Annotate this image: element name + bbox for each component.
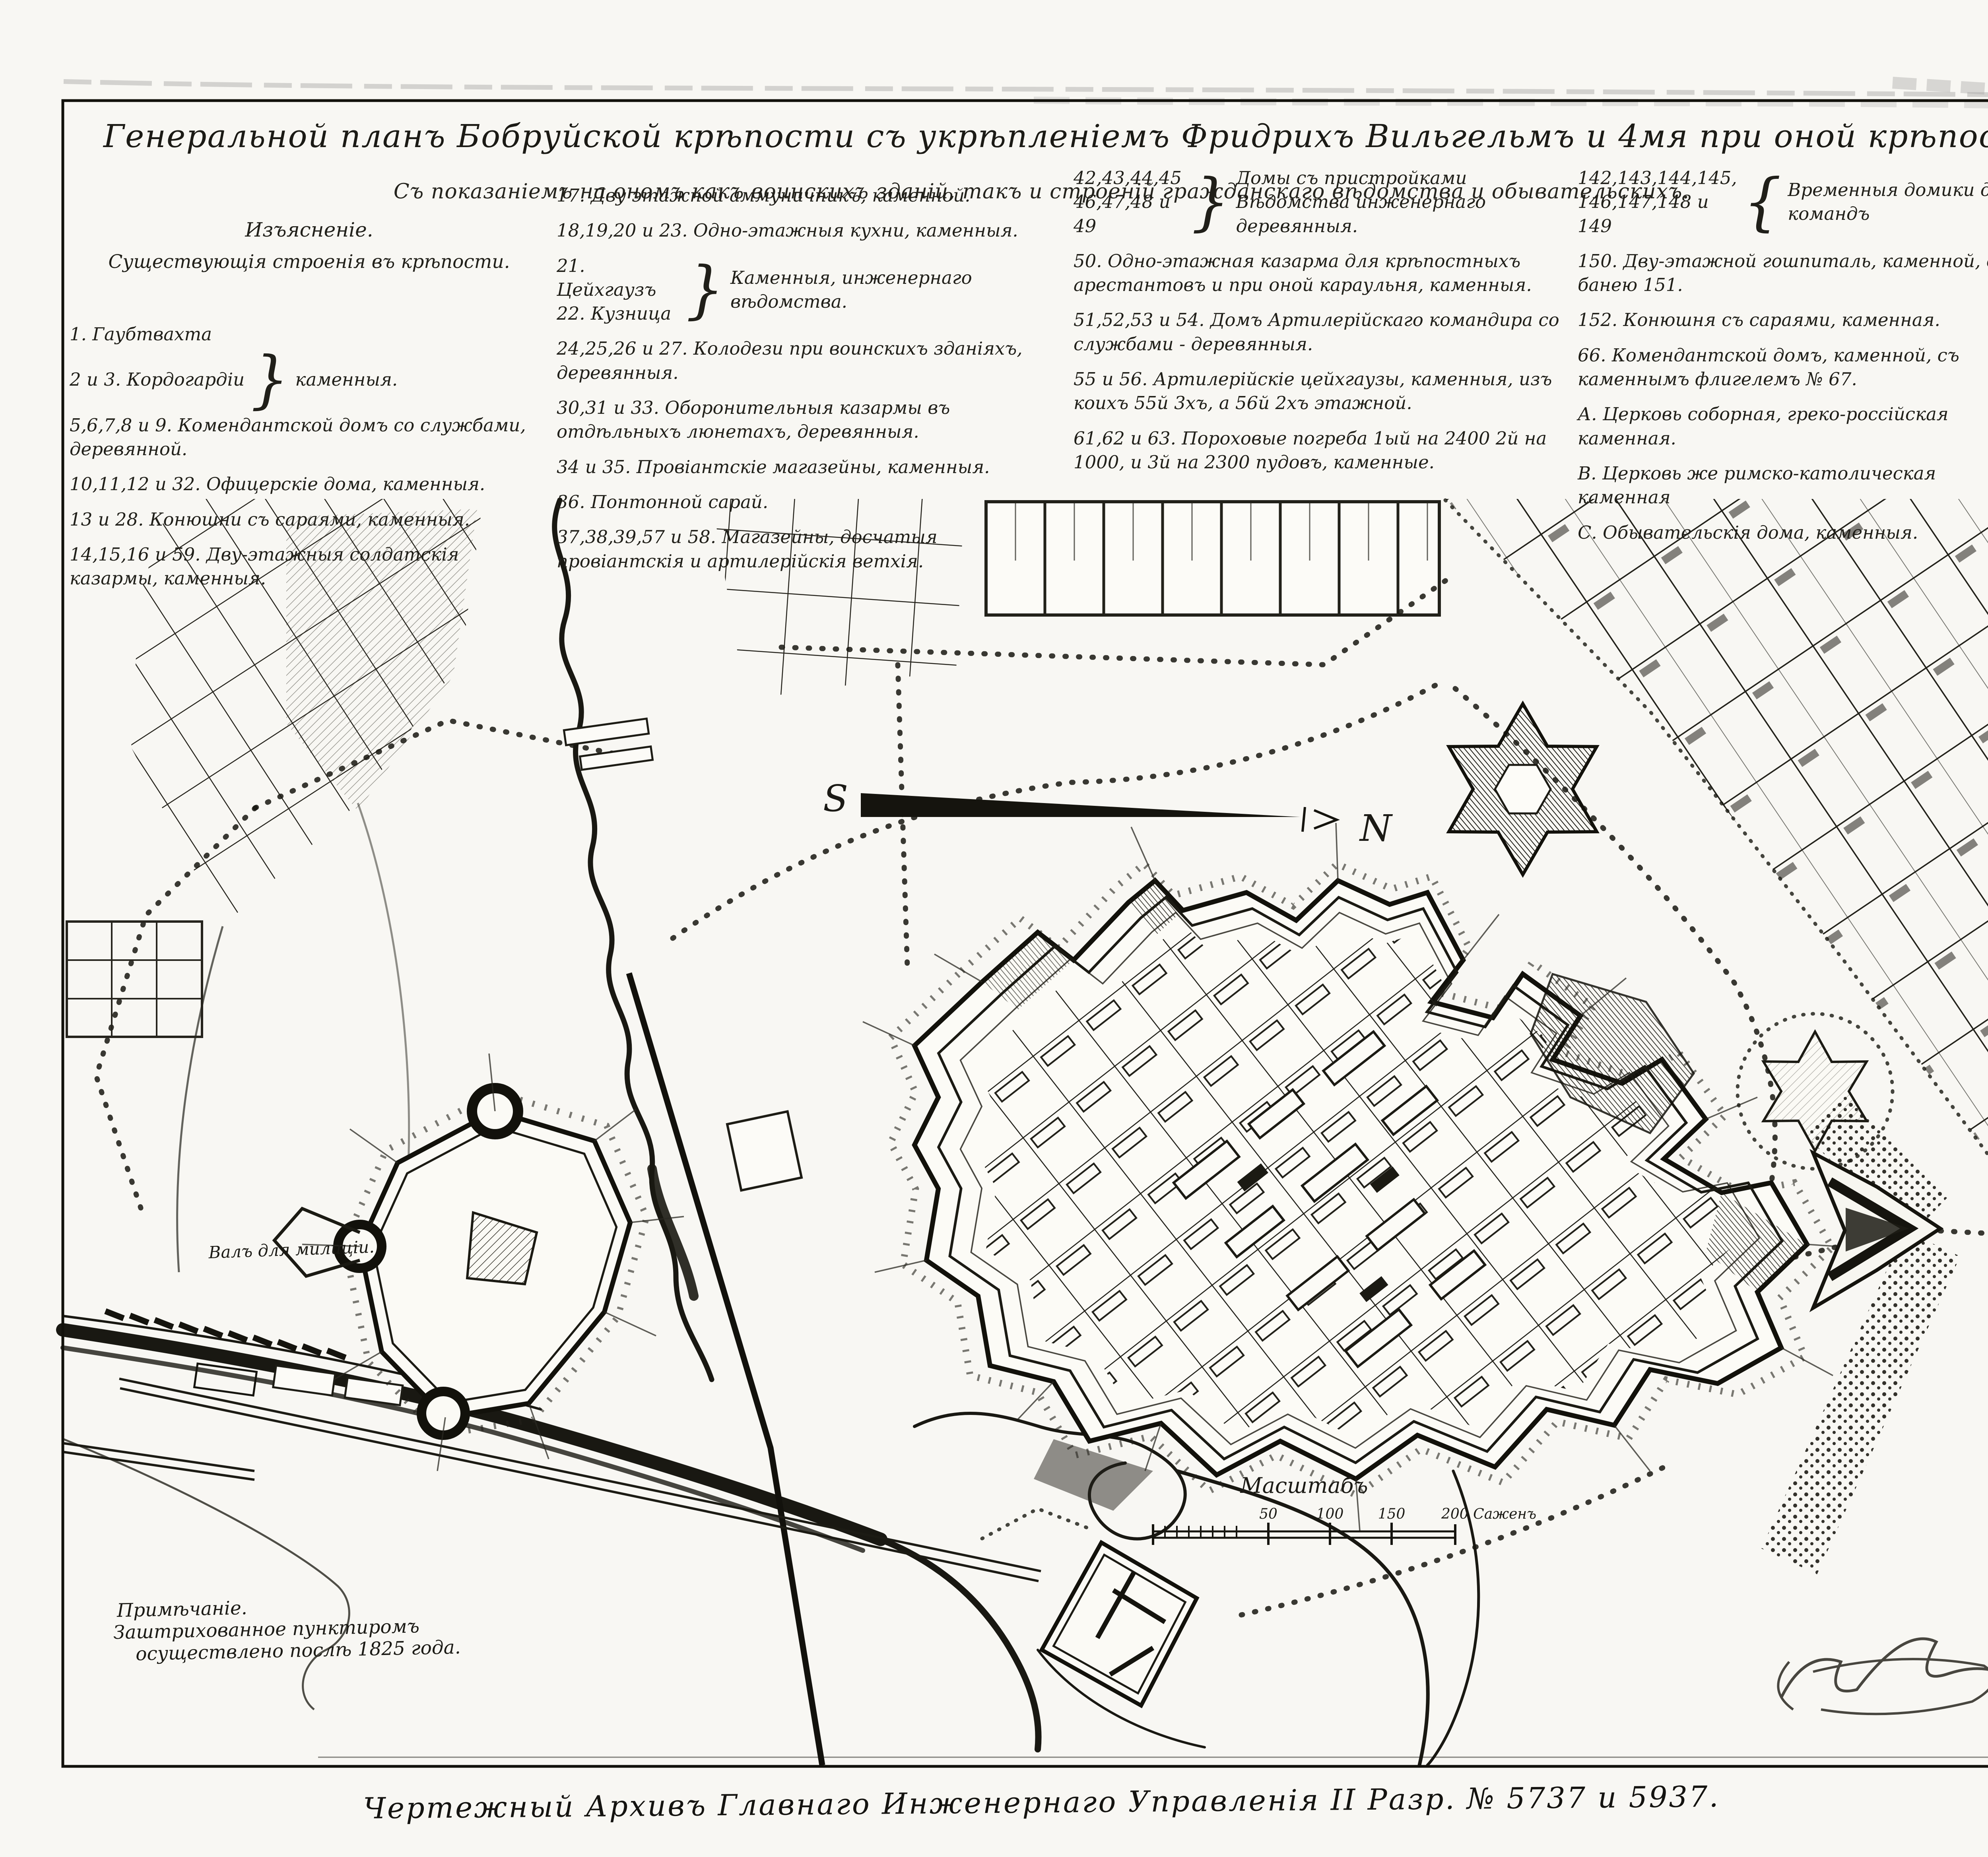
legend-column-4: 142,143,144,145, 146,147,148 и 149 { Вре… [1578,166,1988,556]
legend-item-numbers: 42,43,44,45 [1074,166,1185,190]
signature [1778,1639,1988,1714]
map-sheet: { "title": { "line1": "Генеральной планъ… [0,0,1988,1857]
legend-item: 5,6,7,8 и 9. Комендантской домъ со служб… [70,413,549,462]
legend-item: 13 и 28. Конюшни съ сараями, каменныя. [70,508,549,532]
legend-item: 1. Гаубтвахта [70,322,549,346]
compass-arrow: S N [823,777,1393,850]
legend-item: 142,143,144,145, 146,147,148 и 149 { Вре… [1578,166,1988,238]
legend-item: 17. Дву этажной аммуничникъ, каменной. [557,184,1066,208]
brace-glyph: } [1192,179,1229,225]
legend-item-desc: каменныя. [295,368,398,392]
legend-heading: Изъясненіе. [70,217,549,243]
legend-item-numbers: 21. Цейхгаузъ [557,254,680,302]
legend-item-desc: Каменныя, инженернаго вѣдомства. [730,266,1066,314]
scale-tick-150: 150 [1378,1506,1406,1522]
legend-item: 24,25,26 и 27. Колодези при воинскихъ зд… [557,337,1066,385]
brace-glyph: } [686,266,724,313]
legend-subheading: Существующія строенія въ крѣпости. [70,250,549,275]
legend-item: С. Обывательскія дома, каменныя. [1578,521,1988,545]
scan-smudges [64,81,1988,107]
fort-friedrich-wilhelm [274,1054,684,1471]
legend-item-desc: Временныя домики для командъ [1788,178,1988,226]
legend-item: 2 и 3. Кордогардіи } каменныя. [70,357,549,402]
legend-item: 55 и 56. Артилерійскіе цейхгаузы, каменн… [1074,367,1573,415]
brace-glyph: } [251,356,289,403]
legend-item-numbers: 2 и 3. Кордогардіи [70,368,245,392]
legend-item: 50. Одно-этажная казарма для крѣпостныхъ… [1074,249,1573,297]
main-fortress [863,823,1865,1531]
map-note: Примѣчаніе. Заштрихованное пунктиромъ ос… [116,1593,461,1665]
scale-end-label: 200 Саженъ [1441,1506,1536,1522]
legend-item-desc: Домы съ пристройками [1236,166,1573,190]
legend-item: 152. Конюшня съ сараями, каменная. [1578,308,1988,332]
legend-item: 150. Дву-этажной гошпиталь, каменной, съ… [1578,249,1988,297]
city-grid-west [67,922,202,1037]
legend-item: 51,52,53 и 54. Домъ Артилерійскаго коман… [1074,308,1573,356]
legend-column-3: 42,43,44,45 46,47,48 и 49 } Домы съ прис… [1074,166,1573,485]
legend-item: 30,31 и 33. Оборонительныя казармы въ от… [557,396,1066,444]
compass-north-label: N [1359,807,1393,850]
star-outwork-north [1449,704,1597,875]
legend-item: 34 и 35. Провіантскіе магазейны, каменны… [557,455,1066,479]
legend-item: 36. Понтонной сарай. [557,490,1066,514]
legend-item: В. Церковь же римско-католическая каменн… [1578,462,1988,510]
legend-item: 14,15,16 и 59. Дву-этажныя солдатскія ка… [70,543,549,591]
legend-item: 21. Цейхгаузъ 22. Кузница } Каменныя, ин… [557,254,1066,326]
legend-item: 61,62 и 63. Пороховые погреба 1ый на 240… [1074,427,1573,475]
map-title: Генеральной планъ Бобруйской крѣпости съ… [103,118,1980,155]
legend-item: 18,19,20 и 23. Одно-этажныя кухни, камен… [557,219,1066,243]
legend-column-2: 17. Дву этажной аммуничникъ, каменной. 1… [557,184,1066,584]
chevron-outwork [1761,1093,1960,1574]
compass-south-label: S [823,777,848,820]
legend-item-numbers: 142,143,144,145, [1578,166,1737,190]
legend-item: 37,38,39,57 и 58. Магазейны, досчатыя пр… [557,525,1066,573]
legend-column-1: Изъясненіе. Существующія строенія въ крѣ… [70,217,549,602]
legend-item-desc: Вѣдомства инженернаго деревянныя. [1236,190,1573,238]
legend-item: 10,11,12 и 32. Офицерскіе дома, каменныя… [70,472,549,496]
island-redoubt [1042,1543,1197,1706]
legend-item: 42,43,44,45 46,47,48 и 49 } Домы съ прис… [1074,166,1573,238]
legend-item-numbers: 22. Кузница [557,302,680,326]
scale-title: Масштабъ [1240,1473,1368,1498]
legend-item-numbers: 146,147,148 и 149 [1578,190,1737,238]
scale-tick-100: 100 [1316,1506,1344,1522]
legend-item: 66. Комендантской домъ, каменной, съ кам… [1578,343,1988,392]
scale-tick-50: 50 [1259,1506,1277,1522]
legend-item: А. Церковь соборная, греко-россійская ка… [1578,402,1988,450]
legend-item-numbers: 46,47,48 и 49 [1074,190,1185,238]
brace-glyph: { [1743,179,1781,225]
